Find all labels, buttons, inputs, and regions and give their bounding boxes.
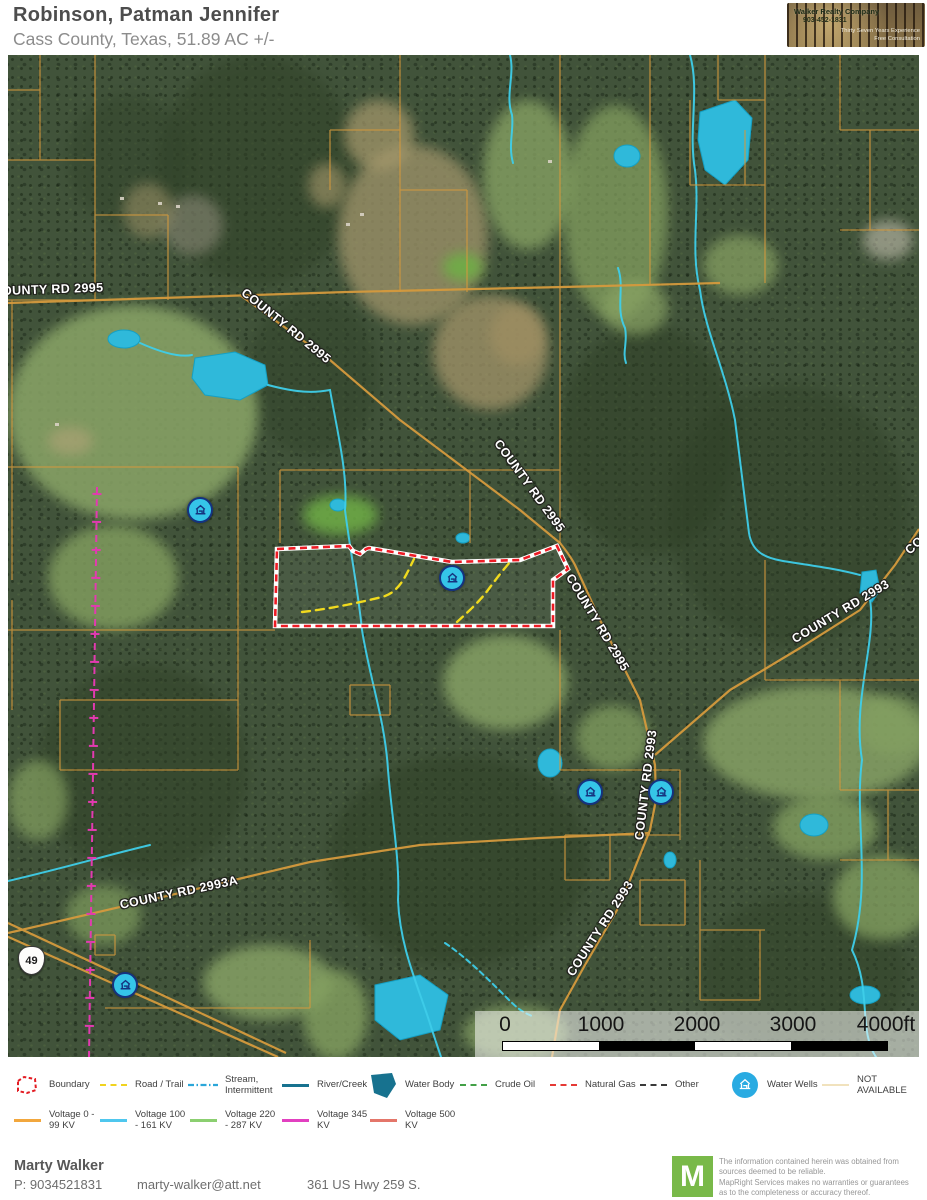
logo-company-name: Walker Realty Company — [794, 7, 879, 16]
scale-tick: 2000 — [674, 1013, 721, 1037]
voltage-0-99-icon — [12, 1119, 42, 1122]
logo-tagline-2: Free Consultation — [874, 36, 920, 42]
scale-tick: 3000 — [770, 1013, 817, 1037]
agent-email: marty-walker@att.net — [137, 1177, 261, 1192]
voltage-220-287-icon — [188, 1119, 218, 1122]
not-available-line-icon — [820, 1084, 850, 1086]
voltage-100-161-icon — [98, 1119, 128, 1122]
agent-phone: P: 9034521831 — [14, 1177, 102, 1192]
agent-address: 361 US Hwy 259 S. — [307, 1177, 420, 1192]
legend-item-voltage-345: Voltage 345 KV — [280, 1104, 372, 1136]
page-subtitle: Cass County, Texas, 51.89 AC +/- — [13, 29, 275, 50]
page-title: Robinson, Patman Jennifer — [13, 4, 279, 27]
legend-item-voltage-0-99: Voltage 0 - 99 KV — [12, 1104, 104, 1136]
agent-name: Marty Walker — [14, 1158, 104, 1174]
parcel-lines — [8, 55, 919, 1008]
powerline — [89, 487, 97, 1057]
legend-item-natural-gas: Natural Gas — [548, 1069, 640, 1101]
legend-item-stream-intermittent: Stream, Intermittent — [188, 1069, 280, 1101]
logo-tagline-1: Thirty Seven Years Experience — [841, 28, 920, 34]
water-well-marker — [187, 497, 213, 523]
legend-item-not-available: NOT AVAILABLE — [820, 1069, 912, 1101]
water-body-icon — [368, 1072, 398, 1099]
water-well-icon — [730, 1072, 760, 1098]
legend-item-water-wells: Water Wells — [730, 1069, 822, 1101]
roads — [8, 283, 919, 1057]
legend-item-crude-oil: Crude Oil — [458, 1069, 550, 1101]
scale-tick: 4000ft — [857, 1013, 915, 1037]
river-creek-icon — [280, 1084, 310, 1087]
scale-tick: 0 — [499, 1013, 511, 1037]
scale-tick: 1000 — [578, 1013, 625, 1037]
stream-intermittent-icon — [188, 1081, 218, 1089]
natural-gas-icon — [548, 1084, 578, 1086]
boundary-icon — [12, 1075, 42, 1095]
voltage-345-icon — [280, 1119, 310, 1122]
legend-item-road-trail: Road / Trail — [98, 1069, 190, 1101]
legend-item-voltage-500: Voltage 500 KV — [368, 1104, 460, 1136]
legend-item-boundary: Boundary — [12, 1069, 104, 1101]
voltage-500-icon — [368, 1119, 398, 1122]
legend-item-voltage-220-287: Voltage 220 - 287 KV — [188, 1104, 280, 1136]
legend-item-water-body: Water Body — [368, 1069, 460, 1101]
road-trail-icon — [98, 1084, 128, 1086]
legend: Boundary Road / Trail Stream, Intermitte… — [0, 1057, 927, 1148]
map-canvas: OUNTY RD 2995 COUNTY RD 2995 COUNTY RD 2… — [8, 55, 919, 1057]
legend-item-voltage-100-161: Voltage 100 - 161 KV — [98, 1104, 190, 1136]
logo-phone: 903-452-1831 — [803, 17, 847, 24]
map-report-page: Robinson, Patman Jennifer Cass County, T… — [0, 0, 927, 1200]
other-line-icon — [638, 1084, 668, 1086]
legend-item-other: Other — [638, 1069, 730, 1101]
mapright-logo: M — [672, 1156, 713, 1197]
company-logo: Walker Realty Company 903-452-1831 Thirt… — [787, 3, 925, 47]
scale-bar-segments — [502, 1041, 888, 1051]
water-well-marker — [577, 779, 603, 805]
water-well-marker — [439, 565, 465, 591]
water-well-marker — [112, 972, 138, 998]
subject-boundary — [275, 546, 568, 626]
disclaimer: The information contained herein was obt… — [719, 1157, 915, 1198]
scale-bar: 0 1000 2000 3000 4000ft — [475, 1011, 919, 1057]
legend-item-river-creek: River/Creek — [280, 1069, 372, 1101]
crude-oil-icon — [458, 1084, 488, 1086]
water-well-marker — [648, 779, 674, 805]
